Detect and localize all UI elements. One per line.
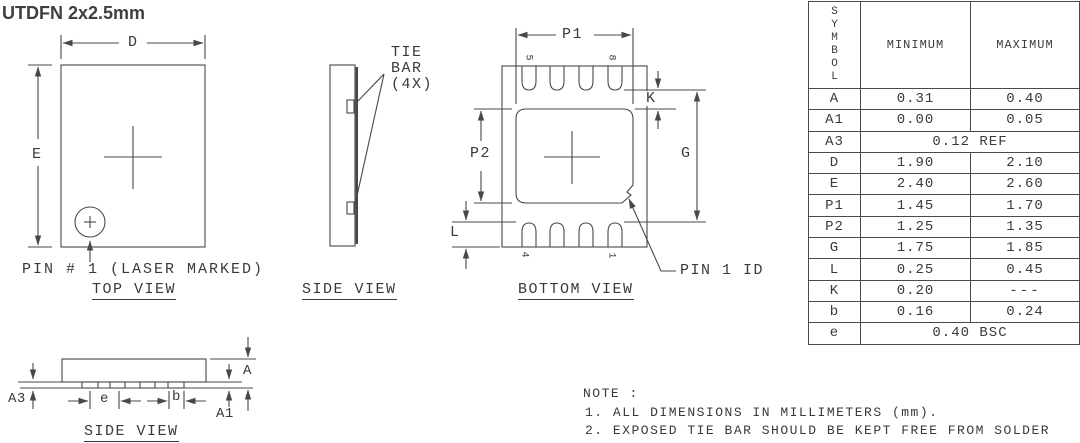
table-row: E2.402.60 [809,174,1080,195]
cell-max: 2.10 [971,152,1080,173]
pin-number-1: 1 [606,252,617,258]
exposed-pad [516,109,633,203]
cell-symbol: e [809,323,861,344]
table-row: D1.902.10 [809,152,1080,173]
cell-max: 1.35 [971,216,1080,237]
cell-min: 1.45 [861,195,971,216]
cell-max: 0.45 [971,259,1080,280]
cell-min: 0.00 [861,110,971,131]
table-row: e0.40 BSC [809,323,1080,344]
cell-symbol: P2 [809,216,861,237]
side-view-label: SIDE VIEW [302,282,397,300]
note-heading: NOTE : [583,386,639,401]
cell-max: 0.05 [971,110,1080,131]
side-view-outline [330,65,384,246]
table-row: L0.250.45 [809,259,1080,280]
top-view-outline [28,35,205,262]
cell-symbol: A1 [809,110,861,131]
dim-label-K: K [646,91,657,106]
package-outline-drawing: UTDFN 2x2.5mm D E PIN # 1 (LASER MARKED)… [0,0,1080,443]
cell-span: 0.40 BSC [861,323,1080,344]
side-view-2-outline [18,337,256,411]
dim-label-E: E [32,147,43,162]
cell-symbol: G [809,238,861,259]
cell-symbol: K [809,280,861,301]
dim-label-D: D [128,35,139,50]
cell-symbol: E [809,174,861,195]
header-maximum: MAXIMUM [971,2,1080,89]
pin-number-5: 5 [523,54,534,60]
cell-min: 1.90 [861,152,971,173]
table-row: b0.160.24 [809,301,1080,322]
pin-number-8: 8 [606,54,617,60]
table-row: A0.310.40 [809,89,1080,110]
dim-label-P2: P2 [470,146,491,161]
cell-max: --- [971,280,1080,301]
note-item-1: 1. ALL DIMENSIONS IN MILLIMETERS (mm). [585,405,938,420]
cell-span: 0.12 REF [861,131,1080,152]
cell-symbol: D [809,152,861,173]
dim-label-b: b [172,390,181,405]
pin1-id-label: PIN 1 ID [680,263,764,278]
dim-label-P1: P1 [562,27,583,42]
cell-symbol: P1 [809,195,861,216]
table-row: G1.751.85 [809,238,1080,259]
tie-bar-label-line1: TIE [391,45,423,61]
cell-symbol: b [809,301,861,322]
cell-max: 0.40 [971,89,1080,110]
tie-bar-notch-upper [347,100,354,113]
dim-label-A3: A3 [8,392,26,407]
cell-min: 0.25 [861,259,971,280]
note-item-2: 2. EXPOSED TIE BAR SHOULD BE KEPT FREE F… [585,423,1050,438]
table-row: K0.20--- [809,280,1080,301]
dim-label-e: e [100,392,109,407]
dimension-table: SYMBOL MINIMUM MAXIMUM A0.310.40 A10.000… [808,1,1080,345]
header-symbol: SYMBOL [809,2,861,89]
dim-label-L: L [450,225,461,240]
table-header-row: SYMBOL MINIMUM MAXIMUM [809,2,1080,89]
cell-min: 1.25 [861,216,971,237]
page-title: UTDFN 2x2.5mm [2,3,145,24]
tie-bar-label-line2: BAR [391,61,423,77]
cell-symbol: A3 [809,131,861,152]
bottom-view-label: BOTTOM VIEW [518,282,634,300]
cell-min: 0.20 [861,280,971,301]
cell-min: 0.31 [861,89,971,110]
cell-max: 0.24 [971,301,1080,322]
dim-label-A1: A1 [216,407,234,422]
pin-number-4: 4 [519,251,530,257]
dim-label-A: A [243,364,252,379]
side-view-2-label: SIDE VIEW [84,424,179,442]
pin1-note: PIN # 1 (LASER MARKED) [22,262,264,277]
table-row: P11.451.70 [809,195,1080,216]
top-view-label: TOP VIEW [92,282,176,300]
cell-max: 2.60 [971,174,1080,195]
dim-label-G: G [681,146,692,161]
cell-min: 2.40 [861,174,971,195]
table-row: A30.12 REF [809,131,1080,152]
cell-symbol: A [809,89,861,110]
table-row: A10.000.05 [809,110,1080,131]
header-minimum: MINIMUM [861,2,971,89]
cell-max: 1.70 [971,195,1080,216]
cell-min: 1.75 [861,238,971,259]
tie-bar-label-line3: (4X) [391,77,433,93]
cell-symbol: L [809,259,861,280]
tie-bar-notch-lower [347,202,354,214]
cell-max: 1.85 [971,238,1080,259]
cell-min: 0.16 [861,301,971,322]
table-row: P21.251.35 [809,216,1080,237]
